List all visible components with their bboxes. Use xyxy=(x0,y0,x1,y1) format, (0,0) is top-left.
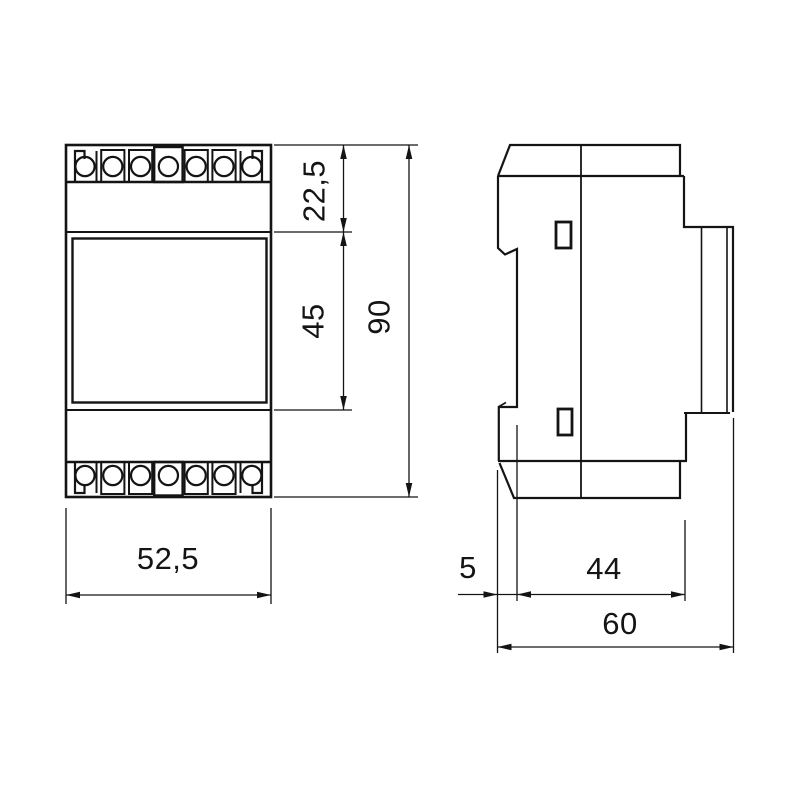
drawing-page: 22,5 45 90 52,5 5 44 60 xyxy=(0,0,800,800)
arrowhead xyxy=(671,591,685,598)
screw-terminal xyxy=(242,157,261,176)
front-view xyxy=(66,145,271,497)
dimension-front-vertical: 22,5 45 90 xyxy=(274,145,418,497)
dim-label-top-section: 22,5 xyxy=(297,160,332,222)
screw-terminal xyxy=(103,157,122,176)
screw-terminal xyxy=(159,157,178,176)
arrowhead xyxy=(406,145,413,159)
screw-terminal xyxy=(214,466,233,485)
front-face-plate xyxy=(73,239,267,403)
screw-terminal xyxy=(242,466,261,485)
dim-label-body-depth: 44 xyxy=(586,551,621,586)
terminal-channel xyxy=(212,150,235,182)
dimension-front-width: 52,5 xyxy=(66,508,271,604)
screw-terminal xyxy=(187,157,206,176)
technical-drawing: 22,5 45 90 52,5 5 44 60 xyxy=(0,0,800,800)
arrowhead xyxy=(340,232,347,246)
screw-terminal xyxy=(131,157,150,176)
side-lower-cover xyxy=(500,462,681,498)
arrowhead xyxy=(484,591,498,598)
screw-terminal xyxy=(214,157,233,176)
arrowhead xyxy=(498,644,512,651)
screw-terminal xyxy=(103,466,122,485)
arrowhead xyxy=(257,592,271,599)
terminal-channel xyxy=(129,150,152,182)
arrowhead xyxy=(340,218,347,232)
terminal-channel xyxy=(185,150,208,182)
screw-terminal xyxy=(75,157,94,176)
side-slot-lower xyxy=(558,409,572,435)
side-top-cover xyxy=(498,145,680,176)
arrowhead xyxy=(406,483,413,497)
front-body-outline xyxy=(66,145,271,497)
screw-terminal xyxy=(187,466,206,485)
screw-terminal xyxy=(75,466,94,485)
side-left-profile xyxy=(498,176,517,461)
dim-label-total-height: 90 xyxy=(362,299,397,334)
arrowhead xyxy=(66,592,80,599)
side-view xyxy=(498,145,733,498)
screw-terminal xyxy=(131,466,150,485)
arrowhead xyxy=(340,396,347,410)
dim-label-clip-depth: 5 xyxy=(459,550,477,585)
terminal-row-bottom xyxy=(66,462,271,496)
terminal-row-top xyxy=(66,147,271,182)
arrowhead xyxy=(517,591,531,598)
side-slot-upper xyxy=(556,222,571,248)
terminal-channel xyxy=(101,150,124,182)
side-right-profile xyxy=(684,176,733,412)
arrowhead xyxy=(720,644,734,651)
dim-label-face-section: 45 xyxy=(296,303,331,338)
arrowhead xyxy=(340,145,347,159)
screw-terminal xyxy=(159,466,178,485)
dim-label-total-depth: 60 xyxy=(602,606,637,641)
dim-label-total-width: 52,5 xyxy=(137,541,199,576)
